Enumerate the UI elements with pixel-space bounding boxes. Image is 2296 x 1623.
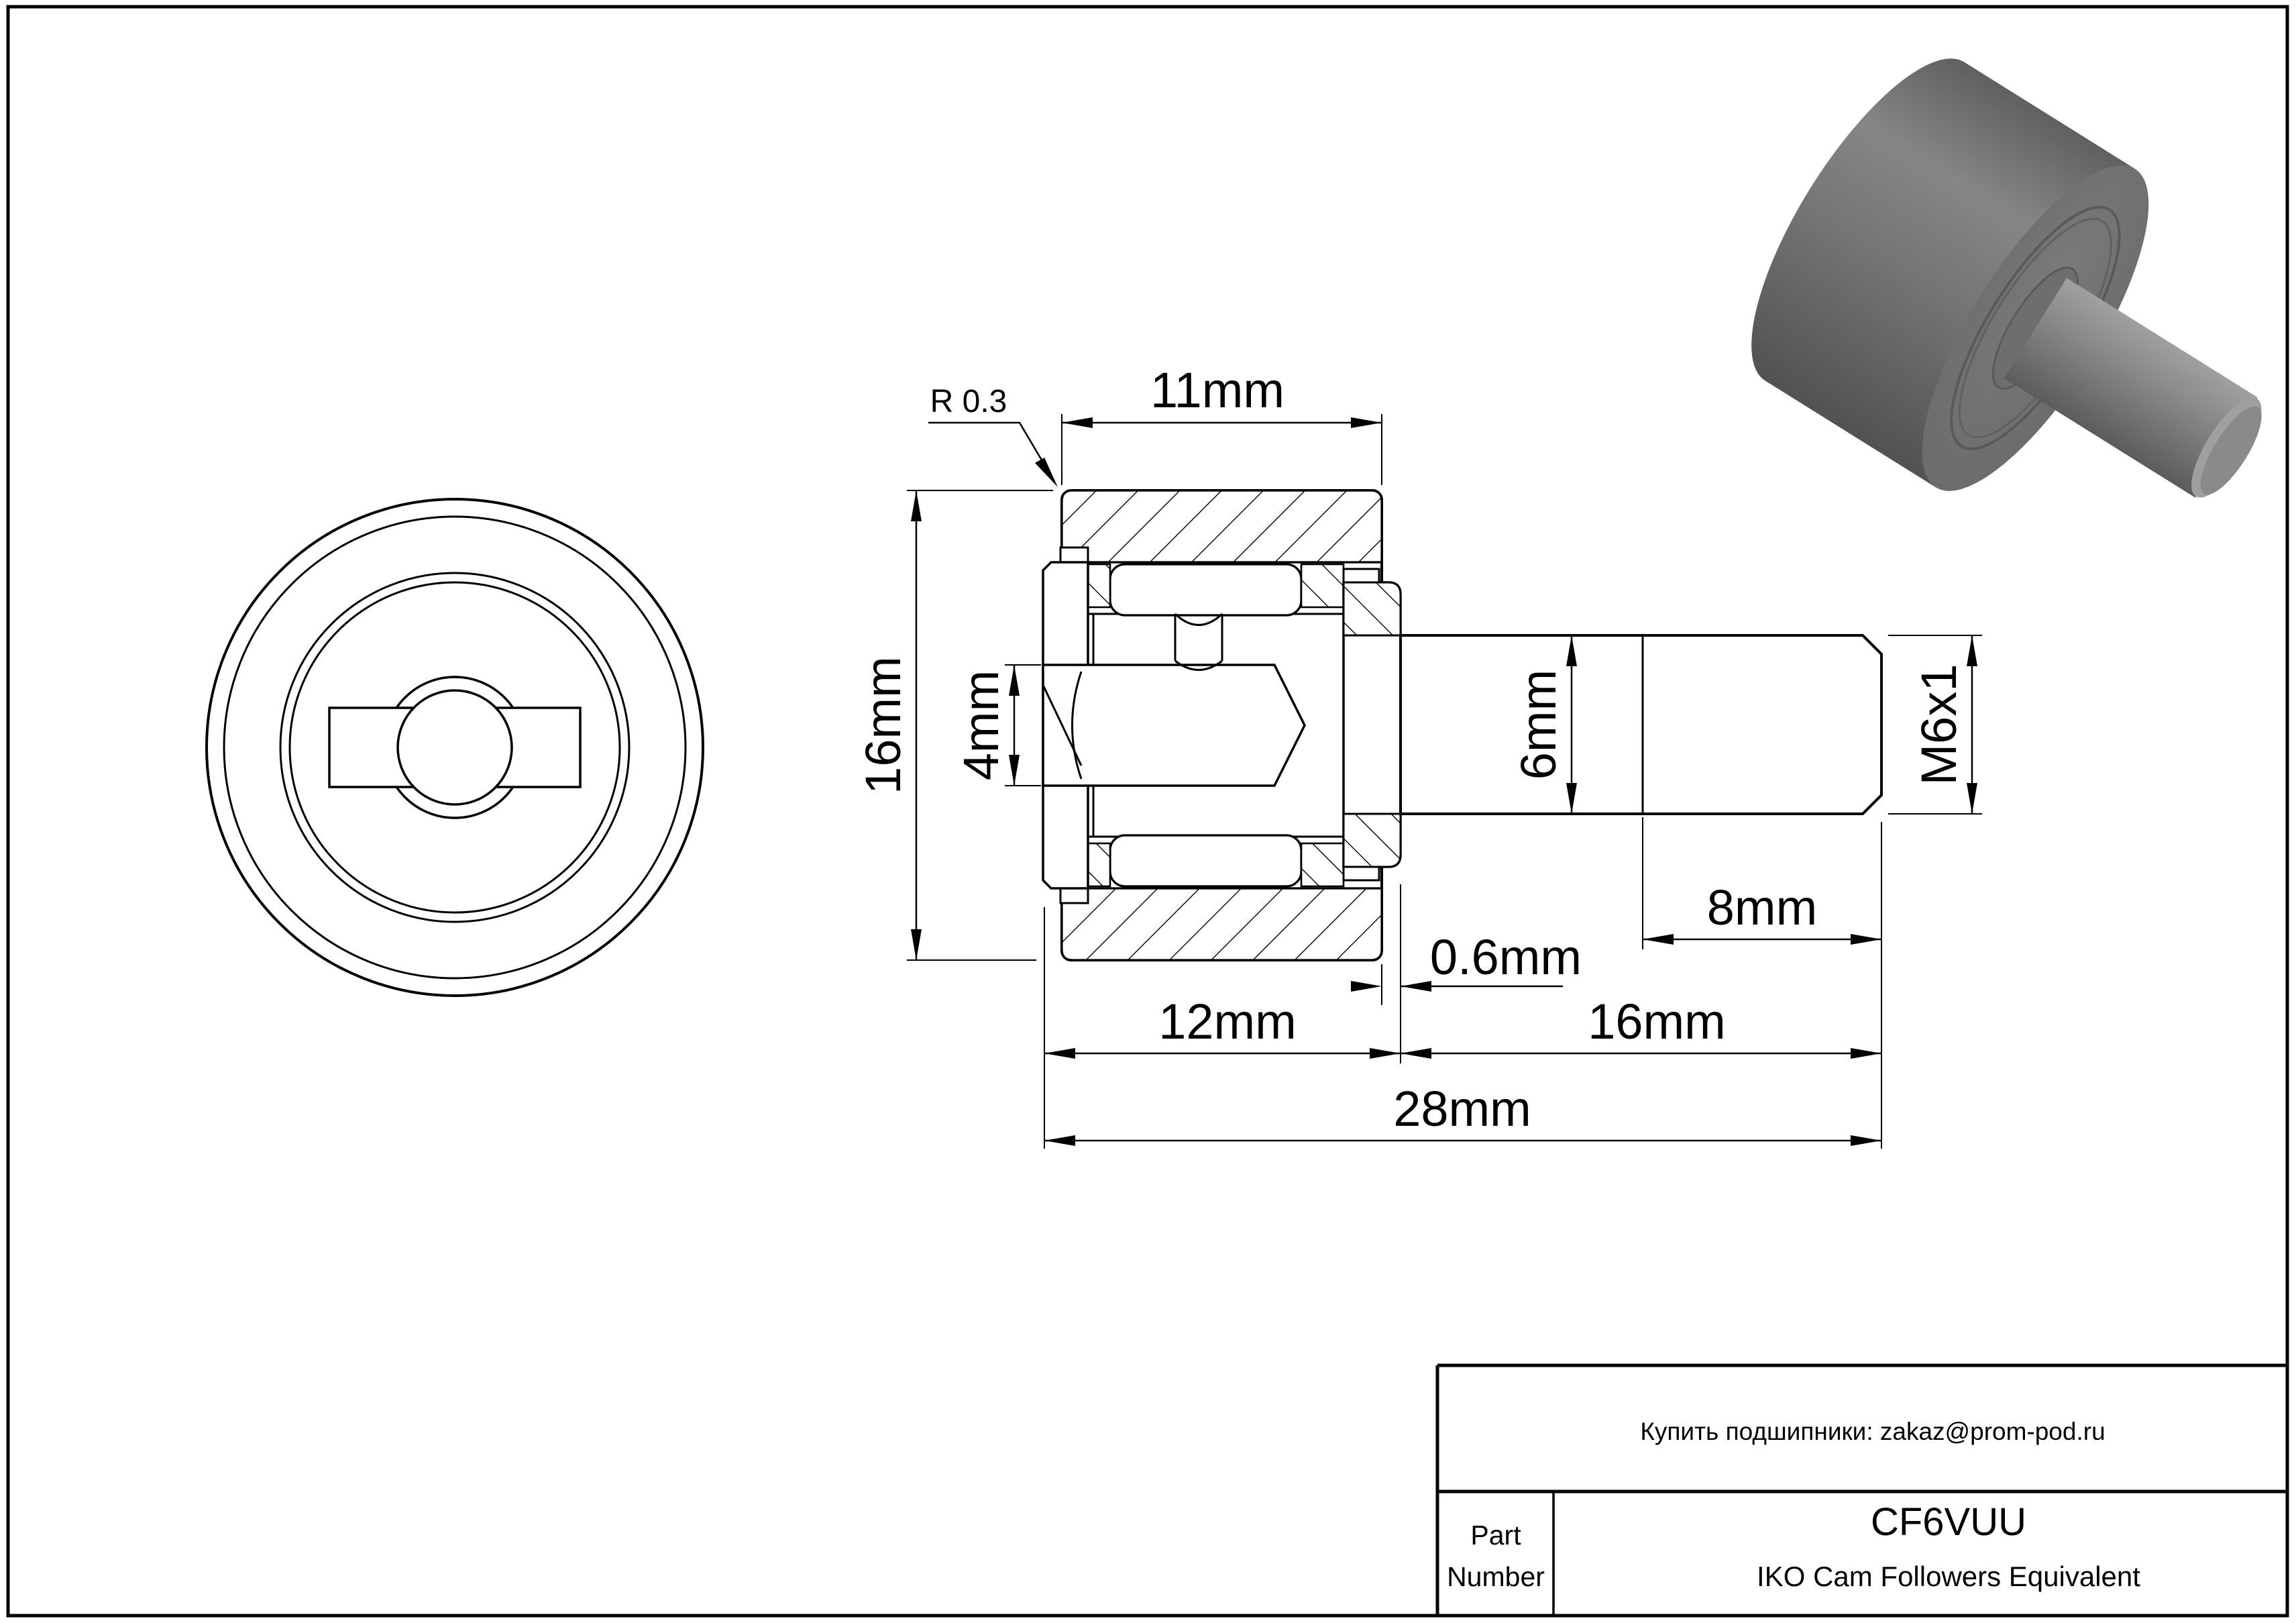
dim-head-length: 12mm xyxy=(1158,994,1297,1049)
flange-lip-bottom xyxy=(1344,867,1379,880)
dim-fillet-radius: R 0.3 xyxy=(930,384,1007,419)
outer-ring-top-section xyxy=(1062,490,1382,562)
cage-left-bottom xyxy=(1088,843,1110,886)
outer-ring-bottom-section xyxy=(1062,888,1382,960)
flange-bottom-section xyxy=(1344,814,1401,867)
dim-socket: 4mm xyxy=(953,670,1009,780)
needle-rollers-bottom xyxy=(1110,835,1301,886)
dim-flange-protrusion: 0.6mm xyxy=(1430,929,1582,985)
front-view xyxy=(207,499,703,996)
dim-thread-spec: M6x1 xyxy=(1911,664,1967,786)
part-label-line2: Number xyxy=(1447,1561,1545,1592)
washer-lip-top xyxy=(1060,547,1088,562)
seal-right-bottom xyxy=(1301,843,1344,886)
part-description: IKO Cam Followers Equivalent xyxy=(1757,1561,2140,1592)
dim-stud-diameter: 6mm xyxy=(1511,670,1566,780)
part-number: CF6VUU xyxy=(1871,1500,2026,1544)
dim-outer-diameter: 16mm xyxy=(855,656,911,794)
washer-lip-bottom xyxy=(1060,888,1088,903)
seal-right-top xyxy=(1301,564,1344,607)
contact-text: Купить подшипники: zakaz@prom-pod.ru xyxy=(1640,1418,2105,1445)
dim-total-length: 28mm xyxy=(1393,1081,1531,1137)
dim-outer-width: 11mm xyxy=(1150,362,1284,418)
cage-left-top xyxy=(1088,564,1110,607)
flange-lip-top xyxy=(1344,569,1379,582)
needle-rollers-top xyxy=(1110,564,1301,615)
stud-shaft xyxy=(1401,635,1881,814)
flange-top-section xyxy=(1344,582,1401,635)
stud-core xyxy=(1043,665,1305,786)
dim-thread-length: 8mm xyxy=(1707,880,1817,935)
stud-bore-circle xyxy=(398,690,512,804)
part-label-line1: Part xyxy=(1470,1520,1521,1551)
drawing-sheet: 11mm R 0.3 16mm 4mm 6mm M6x1 xyxy=(0,0,2296,1623)
dim-stud-length: 16mm xyxy=(1588,994,1726,1049)
